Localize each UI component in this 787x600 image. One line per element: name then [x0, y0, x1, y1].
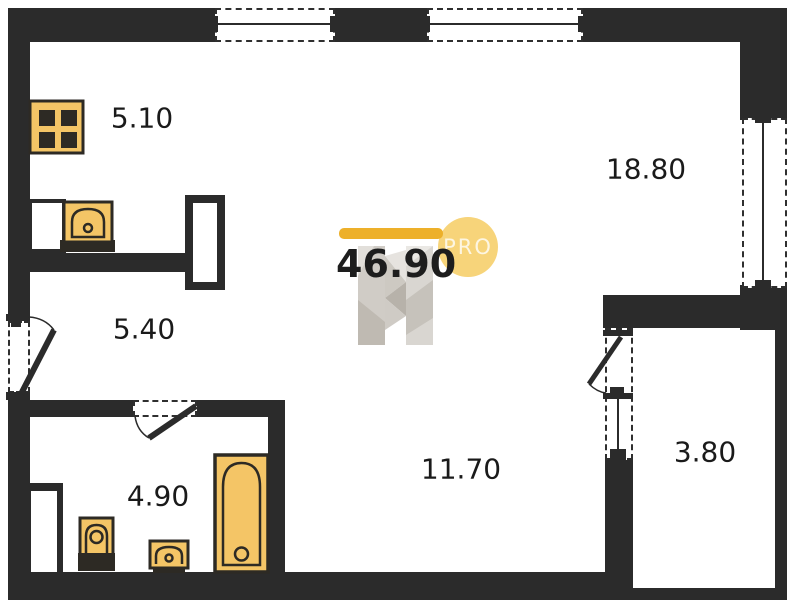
window-top-left	[215, 8, 335, 42]
brand-accent-bar	[339, 228, 443, 239]
floor-plan: 5.10 18.80 5.40 4.90 11.70 3.80 PRO 46.9…	[0, 0, 787, 600]
toilet-icon	[78, 518, 115, 571]
wall-right-upper	[740, 42, 787, 120]
wall-left-upper	[8, 8, 30, 322]
room-label-balcony: 3.80	[674, 436, 736, 469]
stove-icon	[30, 101, 83, 153]
wall-bottom	[8, 572, 633, 600]
room-label-room: 11.70	[421, 453, 501, 486]
wall-balcony-bottom-thin	[633, 588, 787, 600]
wall-bath-right	[268, 400, 285, 572]
room-label-kitchen: 5.10	[111, 102, 173, 135]
room-label-hallway: 5.40	[113, 313, 175, 346]
room-label-bathroom: 4.90	[127, 480, 189, 513]
room-label-living: 18.80	[606, 153, 686, 186]
wall-balcony-partition	[605, 460, 633, 573]
bathroom-door-opening	[133, 400, 197, 417]
wall-hall-bath-left	[28, 400, 133, 417]
bathtub-icon	[215, 455, 268, 572]
kitchen-niche	[28, 199, 66, 253]
wall-top-middle	[335, 8, 427, 42]
wall-top-right	[583, 8, 787, 42]
entrance-door-opening	[8, 321, 30, 393]
balcony-door-window-opening	[605, 328, 633, 460]
wall-living-balcony	[603, 295, 787, 328]
wall-kitchen-hall	[28, 253, 185, 272]
wall-top-left	[8, 8, 215, 42]
bath-closet-inner	[31, 491, 57, 572]
window-top-right	[427, 8, 583, 42]
kitchen-sink-icon	[60, 202, 115, 252]
total-area-label: 46.90	[336, 242, 456, 286]
wall-balcony-right-thin	[775, 328, 787, 600]
shaft-column-inner	[193, 203, 217, 282]
bathroom-sink-icon	[150, 541, 188, 573]
window-right	[742, 118, 787, 288]
